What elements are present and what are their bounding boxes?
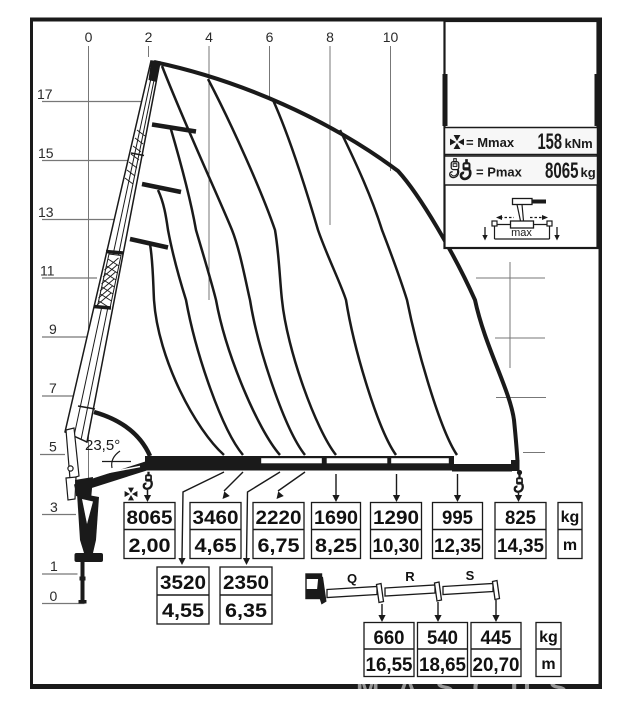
svg-text:kNm: kNm: [565, 136, 593, 151]
svg-text:825: 825: [505, 507, 536, 529]
svg-text:6,75: 6,75: [258, 535, 300, 557]
svg-text:23,5°: 23,5°: [85, 437, 120, 454]
svg-text:kg: kg: [581, 165, 596, 180]
svg-text:995: 995: [442, 507, 473, 529]
svg-text:9: 9: [49, 321, 57, 337]
svg-text:kg: kg: [539, 629, 558, 646]
svg-text:8,25: 8,25: [315, 535, 357, 557]
svg-text:4,55: 4,55: [162, 600, 204, 622]
svg-text:2,00: 2,00: [129, 535, 171, 557]
svg-text:m: m: [563, 537, 577, 554]
svg-text:2: 2: [145, 29, 153, 45]
svg-text:14,35: 14,35: [497, 535, 544, 557]
svg-text:3520: 3520: [160, 572, 206, 594]
svg-text:660: 660: [374, 627, 405, 649]
svg-text:max: max: [511, 227, 532, 239]
svg-text:= Mmax: = Mmax: [466, 135, 515, 150]
svg-text:17: 17: [37, 86, 53, 102]
svg-text:MASCUS: MASCUS: [356, 672, 585, 703]
svg-text:3460: 3460: [193, 507, 239, 529]
svg-text:2350: 2350: [223, 572, 269, 594]
svg-text:1690: 1690: [314, 507, 358, 529]
svg-text:6,35: 6,35: [225, 600, 267, 622]
svg-text:4: 4: [205, 29, 213, 45]
svg-text:4,65: 4,65: [195, 535, 237, 557]
svg-text:3: 3: [50, 499, 58, 515]
svg-text:7: 7: [49, 380, 57, 396]
svg-text:S: S: [466, 568, 475, 583]
svg-text:8: 8: [326, 29, 334, 45]
svg-text:158: 158: [538, 129, 563, 154]
svg-text:15: 15: [38, 145, 54, 161]
svg-text:10,30: 10,30: [373, 535, 420, 557]
svg-text:8065: 8065: [127, 507, 173, 529]
svg-text:0: 0: [50, 588, 58, 604]
svg-text:540: 540: [427, 627, 458, 649]
svg-text:1290: 1290: [373, 507, 419, 529]
svg-text:445: 445: [481, 627, 512, 649]
svg-text:12,35: 12,35: [434, 535, 481, 557]
svg-text:Q: Q: [347, 571, 357, 586]
svg-text:2220: 2220: [256, 507, 302, 529]
svg-text:= Pmax: = Pmax: [476, 165, 523, 180]
svg-text:m: m: [541, 656, 555, 673]
svg-text:R: R: [405, 569, 415, 584]
svg-text:1: 1: [50, 558, 58, 574]
svg-text:kg: kg: [561, 509, 580, 526]
svg-text:6: 6: [266, 29, 274, 45]
svg-text:13: 13: [38, 204, 54, 220]
svg-text:10: 10: [383, 29, 399, 45]
svg-text:8065: 8065: [545, 158, 579, 183]
svg-text:0: 0: [85, 29, 93, 45]
svg-text:5: 5: [49, 439, 57, 455]
svg-text:11: 11: [40, 263, 55, 279]
